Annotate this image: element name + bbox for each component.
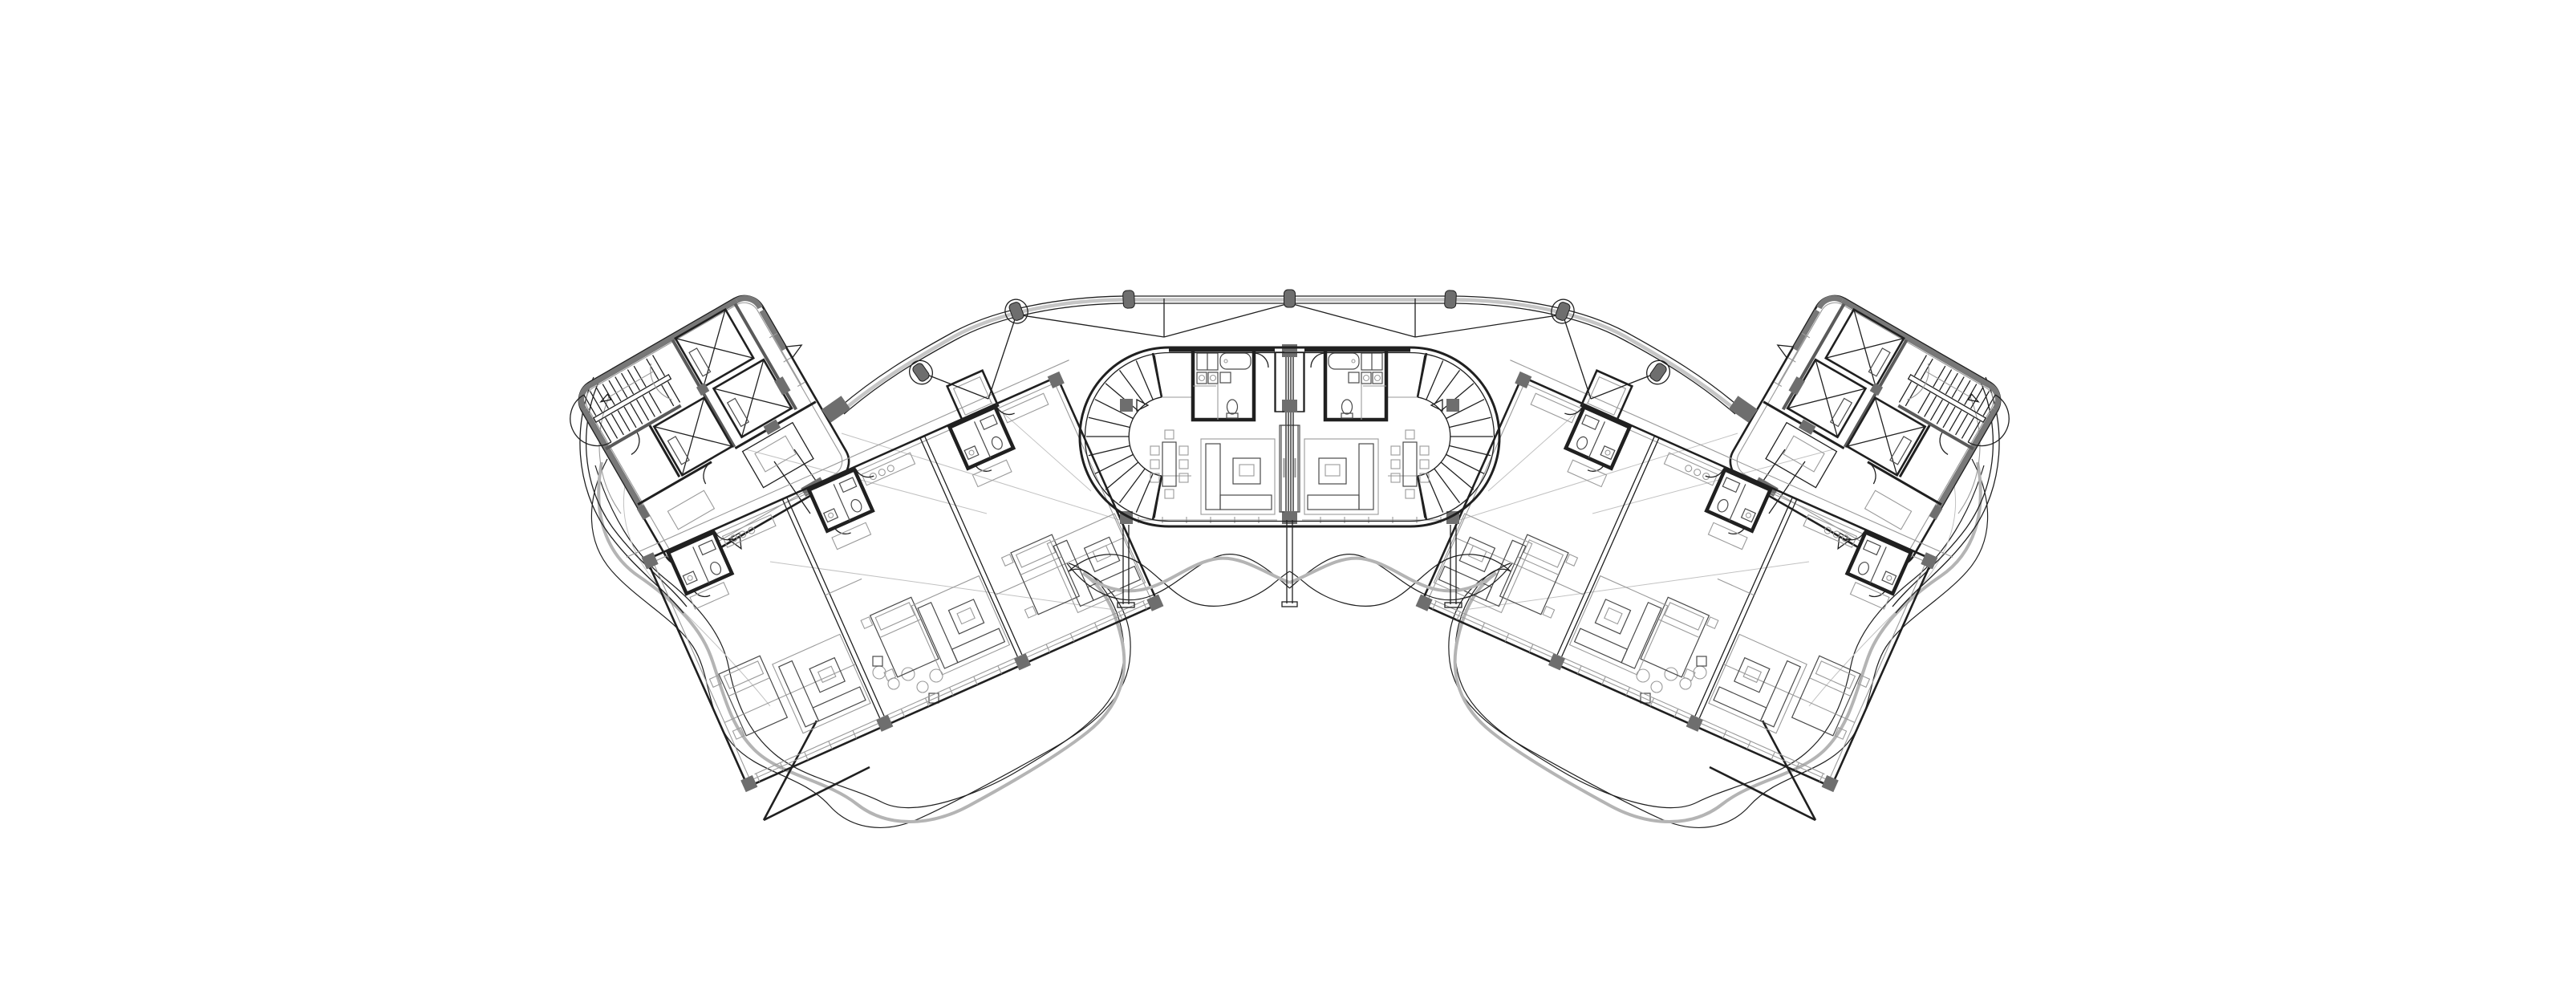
center-post [1282,520,1297,607]
building-plan [556,281,2022,827]
flank-east [1275,281,2023,827]
flank-west [556,281,1304,827]
central-core [1080,290,1499,607]
floor-plan-drawing [0,0,2576,983]
floor-plan-canvas [0,0,2576,983]
